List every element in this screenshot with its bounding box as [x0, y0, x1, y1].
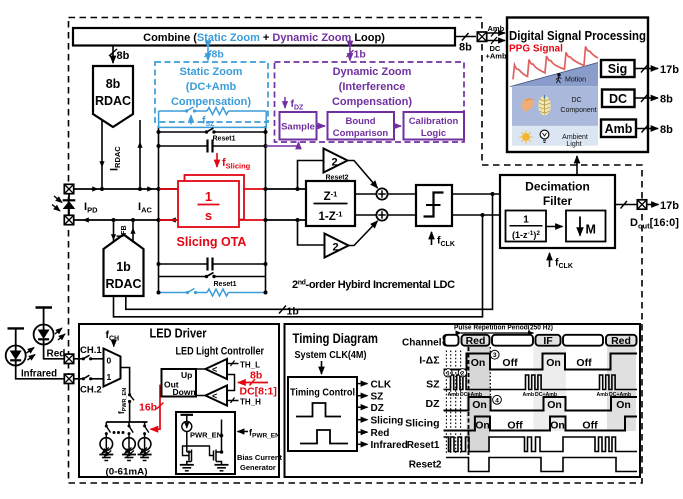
svg-text:On: On	[472, 399, 487, 411]
svg-text:Compensation): Compensation)	[171, 96, 251, 108]
svg-text:1b: 1b	[287, 306, 299, 318]
svg-text:1b: 1b	[116, 260, 131, 274]
svg-text:DZ: DZ	[371, 403, 384, 414]
svg-text:TH_L: TH_L	[240, 361, 260, 370]
svg-text:Slicing OTA: Slicing OTA	[177, 235, 247, 249]
svg-text:DC: DC	[571, 97, 581, 104]
svg-text:Off: Off	[502, 357, 518, 369]
svg-text:Dynamic Zoom: Dynamic Zoom	[333, 66, 412, 78]
svg-text:1b: 1b	[354, 49, 366, 61]
svg-text:(DC+Amb: (DC+Amb	[186, 81, 237, 93]
svg-text:Sample: Sample	[281, 122, 315, 133]
svg-text:+Amb: +Amb	[486, 52, 507, 61]
svg-text:Generator: Generator	[240, 463, 276, 472]
svg-text:Amb: Amb	[488, 24, 505, 33]
svg-text:CH.2: CH.2	[80, 385, 102, 396]
svg-text:Bias Current: Bias Current	[237, 453, 283, 462]
svg-text:Red: Red	[371, 428, 390, 439]
svg-text:Slicing: Slicing	[371, 416, 404, 427]
svg-text:Dout[16:0]: Dout[16:0]	[630, 217, 679, 231]
svg-text:1: 1	[107, 372, 112, 382]
svg-text:16b: 16b	[139, 402, 157, 414]
svg-text:CLK: CLK	[371, 380, 392, 391]
svg-text:Slicing: Slicing	[405, 418, 439, 430]
svg-text:IF: IF	[543, 335, 553, 347]
svg-text:Red: Red	[466, 335, 486, 347]
svg-text:I-ΔΣ: I-ΔΣ	[419, 355, 439, 367]
svg-text:Static Zoom: Static Zoom	[180, 66, 243, 78]
svg-text:8b: 8b	[459, 42, 472, 54]
svg-text:On: On	[550, 420, 565, 432]
svg-text:s: s	[205, 208, 212, 223]
svg-text:On: On	[471, 357, 486, 369]
svg-text:Bound: Bound	[345, 116, 375, 127]
svg-text:Off: Off	[582, 420, 598, 432]
svg-text:<: <	[212, 365, 217, 375]
svg-text:PPG Signal: PPG Signal	[509, 44, 563, 55]
svg-text:1: 1	[205, 189, 212, 204]
svg-text:RDAC: RDAC	[95, 94, 131, 108]
svg-text:Pulse Repetition Period(250 Hz: Pulse Repetition Period(250 Hz)	[454, 323, 553, 332]
svg-text:RDAC: RDAC	[105, 277, 141, 291]
svg-text:On: On	[616, 399, 631, 411]
svg-text:Amb: Amb	[605, 122, 633, 136]
svg-text:Logic: Logic	[421, 128, 446, 139]
svg-text:Infrared: Infrared	[21, 369, 57, 380]
svg-text:Amb: Amb	[448, 392, 460, 398]
svg-text:1: 1	[523, 215, 529, 226]
svg-text:Timing Control: Timing Control	[290, 388, 355, 399]
svg-text:Amb: Amb	[597, 392, 609, 398]
svg-text:Reset2: Reset2	[409, 460, 442, 471]
svg-text:(0-61mA): (0-61mA)	[106, 467, 148, 478]
svg-text:8b: 8b	[250, 370, 262, 382]
svg-text:Infrared: Infrared	[371, 440, 408, 451]
svg-text:SZ: SZ	[426, 379, 440, 391]
svg-text:2nd-order Hybird Incremental L: 2nd-order Hybird Incremental LDC	[292, 279, 455, 291]
svg-text:Filter: Filter	[543, 194, 573, 208]
svg-text:DC[8:1]: DC[8:1]	[240, 386, 277, 398]
svg-text:8b: 8b	[660, 94, 673, 106]
svg-text:On: On	[547, 399, 562, 411]
svg-text:8b: 8b	[212, 49, 224, 61]
svg-text:Off: Off	[576, 357, 592, 369]
svg-text:(1-z-1)2: (1-z-1)2	[512, 230, 540, 240]
svg-text:Down: Down	[173, 387, 196, 397]
svg-text:2: 2	[461, 370, 465, 377]
svg-text:Combine (Static Zoom + Dynamic: Combine (Static Zoom + Dynamic Zoom Loop…	[143, 32, 385, 44]
svg-text:DC: DC	[609, 92, 627, 106]
svg-text:17b: 17b	[660, 64, 679, 76]
svg-text:(Interference: (Interference	[339, 81, 406, 93]
svg-text:Off: Off	[507, 420, 523, 432]
svg-text:Channel: Channel	[402, 338, 442, 349]
svg-text:Red: Red	[47, 349, 66, 360]
svg-text:SZ: SZ	[371, 392, 384, 403]
svg-text:On: On	[546, 357, 561, 369]
svg-text:Component: Component	[560, 107, 596, 114]
svg-text:DZ: DZ	[426, 398, 441, 410]
svg-text:8b: 8b	[106, 77, 121, 91]
svg-text:TH_H: TH_H	[240, 398, 261, 407]
svg-text:Up: Up	[181, 370, 192, 380]
svg-text:LED Driver: LED Driver	[150, 327, 207, 341]
svg-text:CH.1: CH.1	[80, 345, 102, 356]
svg-text:System CLK(4M): System CLK(4M)	[295, 350, 367, 361]
svg-text:0: 0	[107, 356, 112, 366]
svg-text:17b: 17b	[660, 200, 679, 212]
svg-text:Sig: Sig	[608, 62, 627, 76]
svg-text:Calibration: Calibration	[409, 116, 459, 127]
svg-text:Reset1: Reset1	[407, 440, 440, 451]
svg-text:Comparison: Comparison	[333, 128, 389, 139]
svg-text:Red: Red	[611, 335, 631, 347]
svg-text:2: 2	[332, 157, 338, 169]
svg-text:2: 2	[333, 242, 339, 254]
svg-text:4: 4	[495, 397, 499, 404]
svg-text:Amb: Amb	[523, 392, 535, 398]
svg-text:Decimation: Decimation	[525, 180, 590, 194]
svg-text:Light: Light	[566, 141, 581, 148]
svg-text:Reset1: Reset1	[214, 281, 237, 288]
svg-text:PWR_EN: PWR_EN	[190, 431, 222, 440]
svg-text:Compensation): Compensation)	[332, 96, 412, 108]
svg-text:8b: 8b	[117, 50, 130, 62]
svg-text:Reset1: Reset1	[213, 136, 236, 143]
svg-text:Motion: Motion	[565, 77, 586, 84]
svg-text:LED Light Controller: LED Light Controller	[176, 346, 265, 358]
svg-text:On: On	[475, 420, 490, 432]
svg-text:M: M	[586, 223, 596, 237]
svg-text:<: <	[212, 391, 217, 401]
svg-text:8b: 8b	[660, 124, 673, 136]
svg-text:Timing Diagram: Timing Diagram	[293, 331, 379, 346]
svg-text:Digital Signal Processing: Digital Signal Processing	[509, 28, 646, 43]
svg-text:Ambient: Ambient	[562, 134, 588, 141]
svg-text:3: 3	[493, 352, 497, 359]
